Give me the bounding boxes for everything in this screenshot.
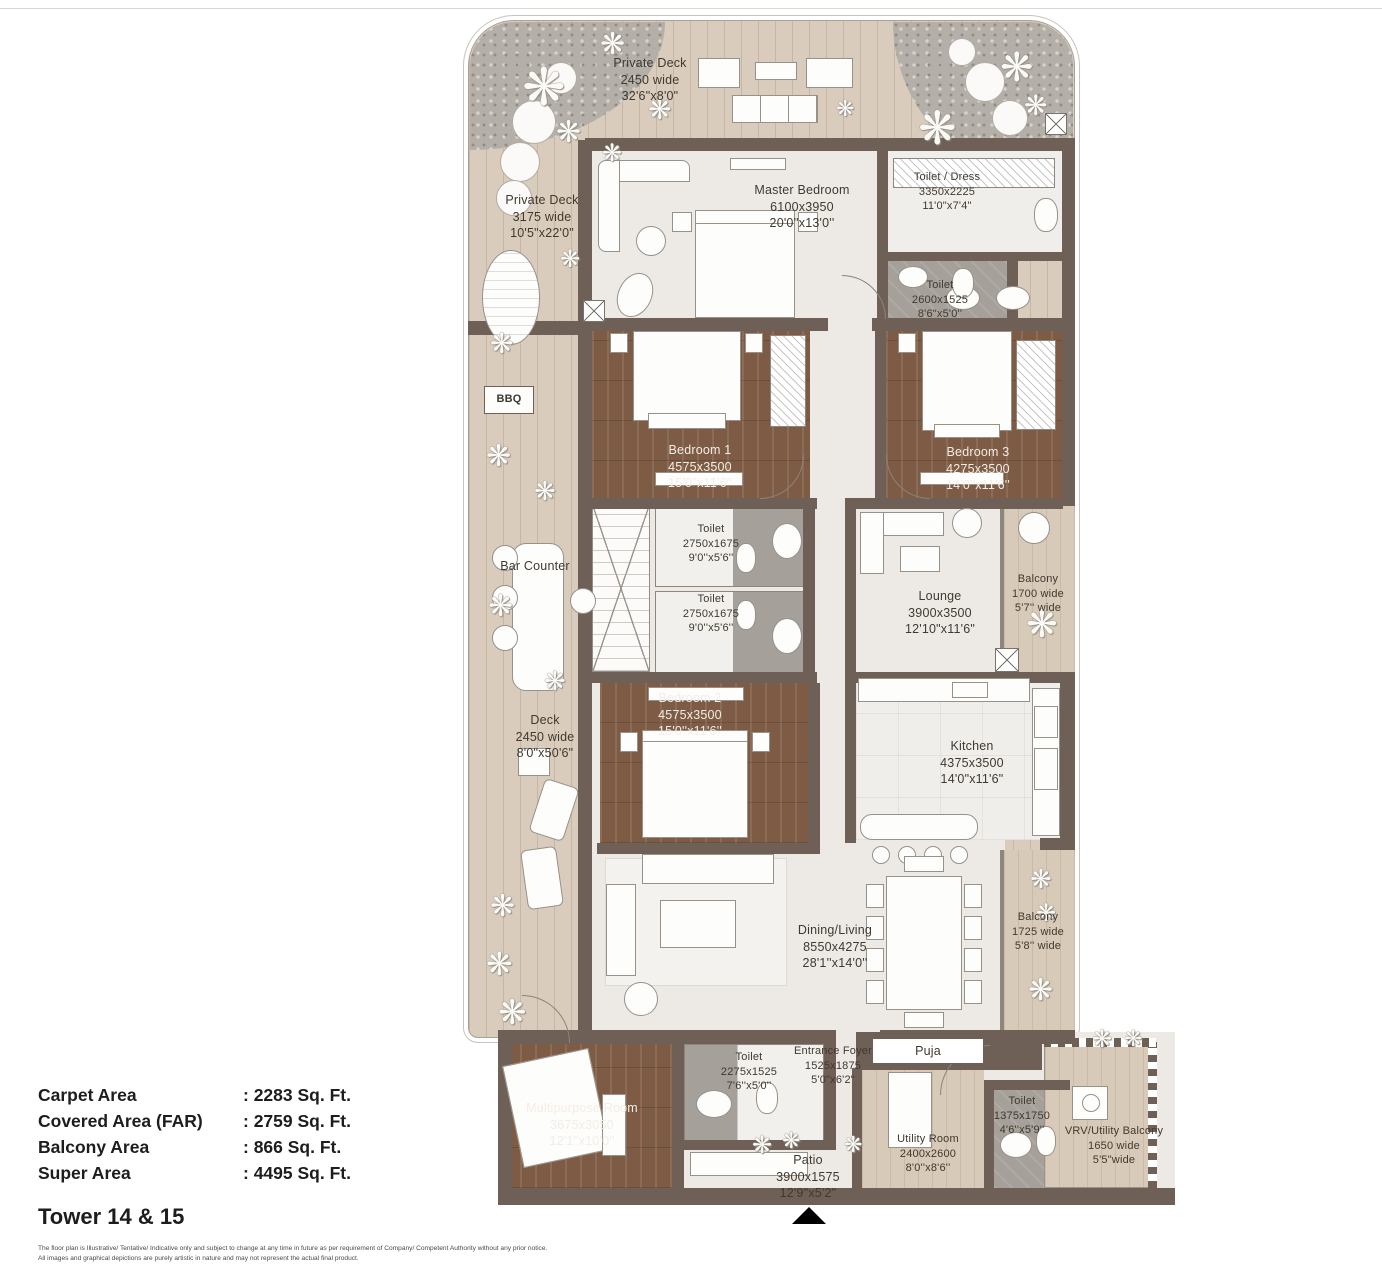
room-name: Puja (872, 1043, 984, 1060)
room-label-toilet-bed1: Toilet 2750x1675 9'0''x5'6'' (652, 522, 770, 566)
dining-chair (866, 980, 884, 1004)
disclaimer: The floor plan is Illustrative/ Tentativ… (38, 1244, 598, 1264)
plant-icon: ❋ (1024, 92, 1047, 120)
room-dim-mm: 2400x2600 (858, 1147, 998, 1162)
deck-table (755, 62, 797, 80)
wall (1040, 838, 1075, 850)
living-sofa (642, 854, 774, 884)
room-label-toilet-dress: Toilet / Dress 3350x2225 11'0"x7'4" (882, 170, 1012, 214)
room-label-kitchen: Kitchen 4375x3500 14'0"x11'6" (902, 738, 1042, 788)
room-dim-ft: 10'5"x22'0" (478, 225, 606, 242)
bed (642, 738, 748, 838)
room-name: Toilet / Dress (882, 170, 1012, 185)
room-label-dining-living: Dining/Living 8550x4275 28'1''x14'0'' (755, 922, 915, 972)
balcony-table (1018, 512, 1050, 544)
stats-label: Balcony Area (38, 1134, 243, 1160)
deck-sofa (732, 95, 818, 123)
room-dim-mm: 2750x1675 (652, 537, 770, 552)
room-label-private-deck-top: Private Deck 2450 wide 32'6"x8'0" (575, 55, 725, 105)
plant-icon: ❋ (522, 62, 566, 114)
room-dim-ft: 11'0"x7'4" (882, 199, 1012, 214)
room-label-bedroom-1: Bedroom 1 4575x3500 15'0''x11'6'' (630, 442, 770, 492)
wall (887, 252, 1063, 261)
room-name: Private Deck (478, 192, 606, 209)
dining-chair (904, 856, 944, 872)
wall (984, 1080, 1070, 1090)
pouf (624, 982, 658, 1016)
wall (1062, 146, 1075, 506)
wall (845, 509, 856, 683)
column-box (583, 300, 605, 322)
room-dim-ft: 20'0''x13'0'' (722, 215, 882, 232)
room-dim-mm: 4275x3500 (908, 461, 1048, 478)
room-dim-mm: 1525x1875 (790, 1059, 876, 1074)
wall (585, 138, 1075, 151)
room-dim-mm: 4375x3500 (902, 755, 1042, 772)
room-name: Private Deck (575, 55, 725, 72)
room-dim-ft: 15'0''x11'6'' (630, 475, 770, 492)
wall (803, 505, 815, 683)
stepping-stone (965, 62, 1005, 102)
deck-armchair (806, 58, 853, 88)
bedroom-3-wardrobe (1016, 340, 1056, 430)
room-label-entrance-foyer: Entrance Foyer 1525x1875 5'0"x6'2" (790, 1044, 876, 1088)
room-name: Deck (480, 712, 610, 729)
stepping-stone (948, 38, 976, 66)
wall (597, 843, 820, 854)
wall (808, 683, 820, 854)
room-name: Toilet (652, 522, 770, 537)
room-label-bar-counter: Bar Counter (470, 558, 600, 575)
room-dim-ft: 12'10"x11'6" (870, 621, 1010, 638)
entrance-arrow-icon (792, 1207, 826, 1224)
room-dim-mm: 4575x3500 (620, 707, 760, 724)
area-stats: Carpet Area : 2283 Sq. Ft. Covered Area … (38, 1082, 438, 1186)
bbq-label: BBQ (484, 392, 534, 407)
room-dim-mm: 3900x3500 (870, 605, 1010, 622)
room-dim-ft: 8'6"x5'0'' (882, 307, 998, 322)
plant-icon: ❋ (488, 592, 513, 622)
bed (922, 331, 1012, 431)
room-name: Kitchen (902, 738, 1042, 755)
coffee-table (660, 900, 736, 948)
bar-stool (492, 625, 518, 651)
appliance (1034, 706, 1058, 738)
plant-icon: ❋ (1092, 1028, 1112, 1052)
room-name: Balcony (994, 572, 1082, 587)
room-dim-ft: 8'0"x50'6" (480, 745, 610, 762)
round-table (636, 226, 666, 256)
room-label-private-deck-left: Private Deck 3175 wide 10'5"x22'0" (478, 192, 606, 242)
room-dim-ft: 15'0''x11'6'' (620, 723, 760, 740)
plant-icon: ❋ (490, 892, 515, 922)
stats-row: Super Area : 4495 Sq. Ft. (38, 1160, 438, 1186)
wall (875, 331, 886, 501)
room-name: Dining/Living (755, 922, 915, 939)
stats-label: Carpet Area (38, 1082, 243, 1108)
room-dim-mm: 1650 wide (1060, 1139, 1168, 1154)
kitchen-island (860, 814, 978, 840)
stats-row: Covered Area (FAR) : 2759 Sq. Ft. (38, 1108, 438, 1134)
wall (585, 498, 817, 509)
column-box (1045, 113, 1067, 135)
room-name: BBQ (484, 392, 534, 407)
coffee-table (900, 546, 940, 572)
room-name: Lounge (870, 588, 1010, 605)
kitchen-counter (858, 678, 1030, 702)
room-label-vrv-balcony: VRV/Utility Balcony 1650 wide 5'5"wide (1060, 1124, 1168, 1168)
room-dim-mm: 3675x3050 (498, 1117, 666, 1134)
room-dim-mm: 1725 wide (994, 925, 1082, 940)
nightstand (745, 333, 763, 353)
plant-icon: ❋ (498, 996, 527, 1030)
tv-console (730, 158, 786, 170)
room-dim-ft: 8'0''x8'6'' (858, 1161, 998, 1176)
room-name: Patio (738, 1152, 878, 1169)
stepping-stone (500, 142, 540, 182)
bed-foot-bench (934, 424, 1000, 438)
room-dim-ft: 9'0''x5'6'' (652, 551, 770, 566)
master-bed (695, 218, 795, 318)
page-top-rule (0, 8, 1382, 9)
column-box (995, 648, 1019, 672)
room-name: Bedroom 1 (630, 442, 770, 459)
dining-chair (866, 884, 884, 908)
room-label-master-bedroom: Master Bedroom 6100x3950 20'0''x13'0'' (722, 182, 882, 232)
nightstand (898, 333, 916, 353)
plant-icon: ❋ (486, 442, 511, 472)
plant-icon: ❋ (1030, 866, 1052, 892)
plant-icon: ❋ (534, 478, 556, 504)
room-dim-ft: 12'9"x5'2" (738, 1185, 878, 1202)
disclaimer-line: All images and graphical depictions are … (38, 1254, 598, 1264)
room-dim-mm: 1700 wide (994, 587, 1082, 602)
plant-icon: ❋ (1028, 976, 1053, 1006)
plant-icon: ❋ (556, 118, 581, 148)
room-dim-ft: 14'0''x11'6'' (908, 477, 1048, 494)
living-sofa (606, 884, 636, 976)
nightstand (672, 212, 692, 232)
plant-icon: ❋ (782, 1130, 800, 1152)
shaft-panel (592, 505, 650, 672)
room-name: Toilet (966, 1094, 1078, 1109)
stats-value: : 2283 Sq. Ft. (243, 1082, 351, 1108)
room-name: VRV/Utility Balcony (1060, 1124, 1168, 1139)
plant-icon: ❋ (486, 948, 513, 980)
stats-row: Carpet Area : 2283 Sq. Ft. (38, 1082, 438, 1108)
dining-chair (964, 980, 982, 1004)
lounge-sofa (860, 512, 884, 574)
floor-plan-page: BBQ (0, 0, 1382, 1264)
plant-icon: ❋ (560, 248, 580, 272)
room-name: Multipurpose Room (498, 1100, 666, 1117)
room-dim-mm: 2600x1525 (882, 293, 998, 308)
disclaimer-line: The floor plan is Illustrative/ Tentativ… (38, 1244, 598, 1254)
wc (1034, 198, 1058, 232)
washing-machine-drum-icon (1082, 1094, 1100, 1112)
room-name: Balcony (994, 910, 1082, 925)
plant-icon: ❋ (836, 98, 854, 120)
wall (585, 318, 828, 331)
room-dim-mm: 3900x1575 (738, 1169, 878, 1186)
room-dim-ft: 5'7'' wide (994, 601, 1082, 616)
plant-icon: ❋ (490, 330, 513, 358)
accent-chair (952, 508, 982, 538)
stats-value: : 4495 Sq. Ft. (243, 1160, 351, 1186)
room-label-lounge: Lounge 3900x3500 12'10"x11'6" (870, 588, 1010, 638)
room-dim-mm: 8550x4275 (755, 939, 915, 956)
basin (772, 618, 802, 654)
room-dim-ft: 32'6"x8'0" (575, 88, 725, 105)
tower-title: Tower 14 & 15 (38, 1204, 184, 1230)
bedroom-1-wardrobe (770, 335, 806, 427)
wall (845, 683, 856, 843)
bar-stool (570, 588, 596, 614)
room-dim-mm: 2750x1675 (652, 607, 770, 622)
room-dim-mm: 3350x2225 (882, 185, 1012, 200)
room-label-toilet-master: Toilet 2600x1525 8'6"x5'0'' (882, 278, 998, 322)
room-dim-ft: 14'0"x11'6" (902, 771, 1042, 788)
room-label-multipurpose: Multipurpose Room 3675x3050 12'1''x10'0'… (498, 1100, 666, 1150)
room-name: Bedroom 2 (620, 690, 760, 707)
basin (996, 286, 1030, 310)
room-name: Toilet (882, 278, 998, 293)
stats-label: Covered Area (FAR) (38, 1108, 243, 1134)
stats-value: : 866 Sq. Ft. (243, 1134, 341, 1160)
room-label-balcony-upper: Balcony 1700 wide 5'7'' wide (994, 572, 1082, 616)
dining-chair (964, 884, 982, 908)
room-name: Bar Counter (470, 558, 600, 575)
plant-icon: ❋ (602, 142, 622, 166)
hob (952, 682, 988, 698)
room-dim-ft: 5'0"x6'2" (790, 1073, 876, 1088)
island-stool (872, 846, 890, 864)
room-name: Bedroom 3 (908, 444, 1048, 461)
room-label-balcony-lower: Balcony 1725 wide 5'8'' wide (994, 910, 1082, 954)
basin (696, 1090, 732, 1118)
room-name: Toilet (652, 592, 770, 607)
nightstand (610, 333, 628, 353)
room-label-toilet-bed2: Toilet 2750x1675 9'0''x5'6'' (652, 592, 770, 636)
room-dim-mm: 2450 wide (480, 729, 610, 746)
plant-icon: ❋ (544, 668, 566, 694)
dining-chair (964, 916, 982, 940)
wall (585, 672, 817, 683)
plant-icon: ❋ (1000, 48, 1034, 88)
stats-value: : 2759 Sq. Ft. (243, 1108, 351, 1134)
room-dim-ft: 9'0''x5'6'' (652, 621, 770, 636)
island-stool (950, 846, 968, 864)
room-label-puja: Puja (872, 1043, 984, 1060)
wall (672, 1044, 684, 1188)
plant-icon: ❋ (918, 105, 957, 151)
room-dim-ft: 12'1''x10'0'' (498, 1133, 666, 1150)
stepping-stone (992, 100, 1028, 136)
plant-icon: ❋ (1124, 1028, 1142, 1050)
room-dim-mm: 2450 wide (575, 72, 725, 89)
room-name: Master Bedroom (722, 182, 882, 199)
room-label-patio: Patio 3900x1575 12'9"x5'2" (738, 1152, 878, 1202)
room-name: Entrance Foyer (790, 1044, 876, 1059)
room-dim-mm: 3175 wide (478, 209, 606, 226)
stats-label: Super Area (38, 1160, 243, 1186)
room-label-utility: Utility Room 2400x2600 8'0''x8'6'' (858, 1132, 998, 1176)
bed (633, 331, 741, 421)
stats-row: Balcony Area : 866 Sq. Ft. (38, 1134, 438, 1160)
bed-foot-bench (648, 413, 726, 429)
room-dim-mm: 4575x3500 (630, 459, 770, 476)
dining-chair (904, 1012, 944, 1028)
room-dim-ft: 5'5"wide (1060, 1153, 1168, 1168)
basin (772, 523, 802, 559)
dining-chair (964, 948, 982, 972)
room-label-bedroom-3: Bedroom 3 4275x3500 14'0''x11'6'' (908, 444, 1048, 494)
wall (1060, 683, 1075, 840)
room-dim-mm: 6100x3950 (722, 199, 882, 216)
room-dim-ft: 28'1''x14'0'' (755, 955, 915, 972)
room-label-bedroom-2: Bedroom 2 4575x3500 15'0''x11'6'' (620, 690, 760, 740)
room-label-deck: Deck 2450 wide 8'0"x50'6" (480, 712, 610, 762)
room-dim-ft: 5'8'' wide (994, 939, 1082, 954)
room-dim-mm: 1375x1750 (966, 1109, 1078, 1124)
